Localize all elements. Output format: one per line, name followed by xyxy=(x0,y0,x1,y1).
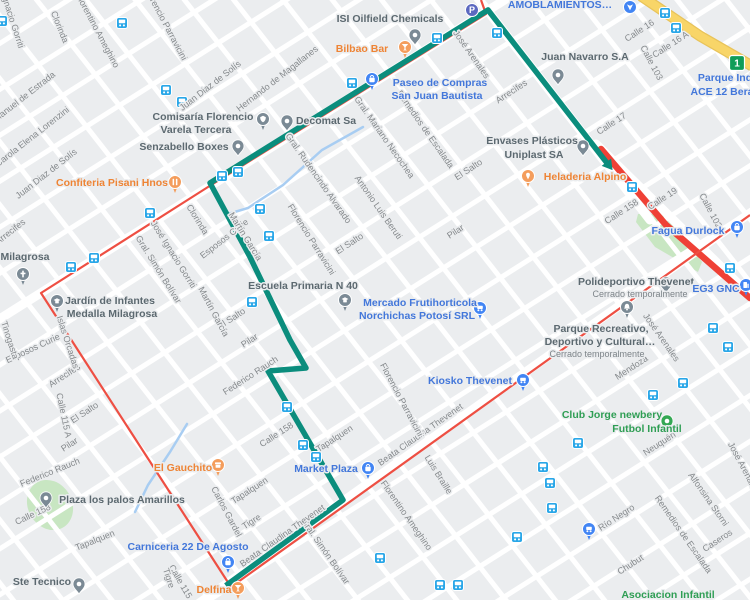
poi-label-ste-tecnico[interactable]: Ste Tecnico xyxy=(13,576,71,588)
poi-label-parque-industrial[interactable]: Parque Ind xyxy=(698,72,750,84)
bus-wheel xyxy=(147,214,149,216)
glyph-hose xyxy=(747,284,748,288)
bus-window xyxy=(540,464,546,468)
bus-wheel xyxy=(239,173,241,175)
bus-window xyxy=(313,454,319,458)
glyph-bag-body xyxy=(369,78,374,83)
bus-wheel xyxy=(167,91,169,93)
bus-window xyxy=(147,210,153,214)
pin-circle xyxy=(169,176,182,189)
bus-window xyxy=(249,299,255,303)
bus-wheel xyxy=(544,468,546,470)
bus-window xyxy=(710,325,716,329)
bus-wheel xyxy=(438,39,440,41)
glyph-awning xyxy=(215,462,221,464)
bus-wheel xyxy=(731,269,733,271)
bus-window xyxy=(284,404,290,408)
poi-label-confiteria-pisani[interactable]: Confiteria Pisani Hnos xyxy=(56,177,168,189)
poi-label-jardin-medalla[interactable]: Medalla Milagrosa xyxy=(67,308,158,320)
bus-window xyxy=(257,206,263,210)
glyph-cart-wheel xyxy=(481,309,483,311)
bus-wheel xyxy=(304,446,306,448)
bus-wheel xyxy=(3,22,5,24)
bus-window xyxy=(91,255,97,259)
bus-window xyxy=(219,173,225,177)
pin-hole xyxy=(285,119,290,124)
poi-label-jardin-medalla[interactable]: Jardín de Infantes xyxy=(65,295,155,307)
poi-pin-amoblamientos[interactable] xyxy=(624,1,637,14)
poi-label-carniceria-22[interactable]: Carniceria 22 De Agosto xyxy=(128,541,249,553)
bus-stop-icon[interactable] xyxy=(298,440,309,451)
glyph-storefront xyxy=(216,465,221,468)
bus-stop-icon[interactable] xyxy=(217,171,228,182)
bus-wheel xyxy=(710,329,712,331)
glyph-cart-wheel xyxy=(590,530,592,532)
bus-window xyxy=(437,582,443,586)
bus-stop-icon[interactable] xyxy=(264,231,275,242)
bus-stop-icon[interactable] xyxy=(547,503,558,514)
poi-label-decomat[interactable]: Decomat Sa xyxy=(296,115,356,127)
bus-stop-icon[interactable] xyxy=(282,402,293,413)
poi-label-parque-industrial[interactable]: ACE 12 Bera xyxy=(690,86,750,98)
bus-stop-icon[interactable] xyxy=(538,462,549,473)
bus-wheel xyxy=(313,458,315,460)
poi-label-paseo-de-compras[interactable]: San Juan Bautista xyxy=(391,90,482,102)
poi-pin-parking-point[interactable]: P xyxy=(466,4,479,17)
bus-stop-icon[interactable] xyxy=(545,478,556,489)
bus-wheel xyxy=(151,214,153,216)
bus-wheel xyxy=(284,408,286,410)
bus-wheel xyxy=(673,29,675,31)
bus-window xyxy=(547,480,553,484)
bus-wheel xyxy=(270,237,272,239)
bus-stop-icon[interactable] xyxy=(161,85,172,96)
bus-window xyxy=(680,380,686,384)
bus-wheel xyxy=(223,177,225,179)
bus-wheel xyxy=(288,408,290,410)
poi-label-delfina[interactable]: Delfina xyxy=(196,584,231,596)
bus-wheel xyxy=(514,538,516,540)
bus-wheel xyxy=(684,384,686,386)
bus-wheel xyxy=(549,509,551,511)
poi-label-iglesia-milagrosa[interactable]: Milagrosa xyxy=(0,251,49,263)
bus-wheel xyxy=(381,559,383,561)
bus-window xyxy=(629,184,635,188)
bus-stop-icon[interactable] xyxy=(66,262,77,273)
bus-stop-icon[interactable] xyxy=(432,33,443,44)
bus-window xyxy=(514,534,520,538)
glyph-cart-wheel xyxy=(477,309,479,311)
bus-wheel xyxy=(349,84,351,86)
bus-stop-icon[interactable] xyxy=(512,532,523,543)
route-shield: 1 xyxy=(730,56,745,71)
bus-wheel xyxy=(437,586,439,588)
bus-wheel xyxy=(680,384,682,386)
glyph-bag-body xyxy=(734,226,739,231)
glyph-cap-base xyxy=(55,301,59,303)
poi-label-mercado-frutihorticola[interactable]: Norchichas Potosí SRL xyxy=(359,310,476,322)
pin-hole xyxy=(236,144,241,149)
bus-stop-icon[interactable] xyxy=(453,580,464,591)
glyph-bag-body xyxy=(225,561,230,566)
bus-stop-icon[interactable] xyxy=(678,378,689,389)
bus-stop-icon[interactable] xyxy=(247,297,258,308)
pin-hole xyxy=(44,496,49,501)
bus-stop-icon[interactable] xyxy=(725,263,736,274)
poi-label-plaza-palos-amarillos[interactable]: Plaza los palos Amarillos xyxy=(59,494,185,506)
bus-stop-icon[interactable] xyxy=(233,167,244,178)
bus-wheel xyxy=(654,396,656,398)
poi-label-comisaria[interactable]: Comisaría Florencio xyxy=(153,111,254,123)
bus-wheel xyxy=(257,210,259,212)
bus-stop-icon[interactable] xyxy=(648,390,659,401)
glyph-cart-body xyxy=(586,527,592,530)
glyph-letter-p: P xyxy=(469,5,475,15)
bus-window xyxy=(549,505,555,509)
bus-wheel xyxy=(727,269,729,271)
map-viewport[interactable]: 1Ignacio GorritiClorindaFlorentino Amegh… xyxy=(0,0,750,600)
bus-stop-icon[interactable] xyxy=(627,182,638,193)
bus-window xyxy=(266,233,272,237)
bus-window xyxy=(673,25,679,29)
glyph-cart-wheel xyxy=(520,381,522,383)
poi-label-heladeria-alpino[interactable]: Heladeria Alpino xyxy=(544,171,626,183)
poi-label-asociacion-infantil[interactable]: Asociacion Infantil xyxy=(621,589,714,600)
bus-wheel xyxy=(253,303,255,305)
route-shield-label: 1 xyxy=(734,59,740,70)
bus-wheel xyxy=(266,237,268,239)
bus-wheel xyxy=(219,177,221,179)
bus-window xyxy=(0,18,5,22)
glyph-cart-body xyxy=(520,378,526,381)
glyph-fork xyxy=(173,179,175,185)
map-canvas[interactable]: 1Ignacio GorritiClorindaFlorentino Amegh… xyxy=(0,0,750,600)
poi-label-parque-recreativo[interactable]: Parque Recreativo, xyxy=(553,323,648,335)
glyph-cap-base xyxy=(343,300,347,302)
bus-stop-icon[interactable] xyxy=(145,208,156,219)
poi-label-market-plaza[interactable]: Market Plaza xyxy=(294,463,358,475)
bus-window xyxy=(349,80,355,84)
bus-wheel xyxy=(579,444,581,446)
glyph-cross-h xyxy=(21,273,26,275)
bus-window xyxy=(235,169,241,173)
pin-hole xyxy=(556,73,561,78)
bus-window xyxy=(300,442,306,446)
poi-sublabel-polideportivo-thevenet: Cerrado temporalmente xyxy=(592,289,687,299)
bus-wheel xyxy=(540,468,542,470)
bus-wheel xyxy=(494,34,496,36)
bus-stop-icon[interactable] xyxy=(89,253,100,264)
poi-label-envases-plasticos[interactable]: Envases Plásticos xyxy=(486,135,578,147)
poi-label-paseo-de-compras[interactable]: Paseo de Compras xyxy=(393,77,488,89)
poi-label-comisaria[interactable]: Varela Tercera xyxy=(160,124,231,136)
poi-label-senzabello[interactable]: Senzabello Boxes xyxy=(139,141,228,153)
bus-window xyxy=(725,344,731,348)
bus-wheel xyxy=(459,586,461,588)
bus-wheel xyxy=(300,446,302,448)
poi-label-juan-navarro[interactable]: Juan Navarro S.A xyxy=(541,51,629,63)
bus-stop-icon[interactable] xyxy=(117,18,128,29)
poi-label-kiosko-thevenet[interactable]: Kiosko Thevenet xyxy=(428,375,513,387)
bus-window xyxy=(68,264,74,268)
bus-wheel xyxy=(68,268,70,270)
glyph-bell-clapper xyxy=(626,309,628,311)
bus-wheel xyxy=(235,173,237,175)
poi-label-fagua-durlock[interactable]: Fagua Durlock xyxy=(652,225,725,237)
glyph-bag-body xyxy=(365,467,370,472)
bus-stop-icon[interactable] xyxy=(375,553,386,564)
bus-stop-icon[interactable] xyxy=(723,342,734,353)
bus-wheel xyxy=(377,559,379,561)
poi-label-club-jorge-newbery[interactable]: Club Jorge newbery xyxy=(562,409,663,421)
bus-stop-icon[interactable] xyxy=(708,323,719,334)
bus-wheel xyxy=(91,259,93,261)
poi-label-escuela-primaria[interactable]: Escuela Primaria N 40 xyxy=(248,280,358,292)
bus-window xyxy=(662,10,668,14)
bus-wheel xyxy=(434,39,436,41)
bus-wheel xyxy=(666,14,668,16)
poi-label-envases-plasticos[interactable]: Uniplast SA xyxy=(505,149,564,161)
bus-window xyxy=(377,555,383,559)
bus-stop-icon[interactable] xyxy=(435,580,446,591)
bus-wheel xyxy=(261,210,263,212)
bus-wheel xyxy=(317,458,319,460)
bus-stop-icon[interactable] xyxy=(492,28,503,39)
poi-label-isi-oilfield[interactable]: ISI Oilfield Chemicals xyxy=(337,13,444,25)
poi-label-el-gauchito[interactable]: El Gauchito xyxy=(154,462,212,474)
bus-stop-icon[interactable] xyxy=(255,204,266,215)
bus-wheel xyxy=(650,396,652,398)
bus-wheel xyxy=(119,24,121,26)
poi-label-polideportivo-thevenet[interactable]: Polideportivo Thevenet xyxy=(578,276,695,288)
bus-window xyxy=(494,30,500,34)
bus-wheel xyxy=(353,84,355,86)
bus-window xyxy=(119,20,125,24)
bus-wheel xyxy=(455,586,457,588)
bus-wheel xyxy=(551,484,553,486)
pin-hole xyxy=(581,144,586,149)
bus-wheel xyxy=(518,538,520,540)
bus-window xyxy=(163,87,169,91)
bus-wheel xyxy=(575,444,577,446)
pin-hole xyxy=(413,33,418,38)
bus-window xyxy=(434,35,440,39)
bus-wheel xyxy=(633,188,635,190)
poi-label-bilbao-bar[interactable]: Bilbao Bar xyxy=(336,43,389,55)
poi-sublabel-parque-recreativo: Cerrado temporalmente xyxy=(549,349,644,359)
poi-label-amoblamientos[interactable]: AMOBLAMIENTOS… xyxy=(508,0,612,11)
bus-wheel xyxy=(553,509,555,511)
glyph-cart-wheel xyxy=(586,530,588,532)
bus-wheel xyxy=(249,303,251,305)
bus-wheel xyxy=(677,29,679,31)
bus-wheel xyxy=(729,348,731,350)
bus-wheel xyxy=(72,268,74,270)
glyph-cart-wheel xyxy=(524,381,526,383)
bus-wheel xyxy=(547,484,549,486)
bus-window xyxy=(727,265,733,269)
poi-label-mercado-frutihorticola[interactable]: Mercado Frutihorticola xyxy=(363,297,477,309)
pin-hole xyxy=(77,582,82,587)
glyph-pump xyxy=(743,282,747,288)
poi-label-club-jorge-newbery[interactable]: Futbol Infantil xyxy=(612,423,681,435)
bus-window xyxy=(575,440,581,444)
bus-wheel xyxy=(662,14,664,16)
glyph-knife xyxy=(176,179,178,185)
bus-wheel xyxy=(629,188,631,190)
bus-wheel xyxy=(95,259,97,261)
bus-window xyxy=(455,582,461,586)
glyph-cart-body xyxy=(477,306,483,309)
bus-wheel xyxy=(123,24,125,26)
bus-stop-icon[interactable] xyxy=(573,438,584,449)
poi-label-parque-recreativo[interactable]: Deportivo y Cultural… xyxy=(545,336,656,348)
bus-wheel xyxy=(714,329,716,331)
bus-wheel xyxy=(163,91,165,93)
bus-stop-icon[interactable] xyxy=(660,8,671,19)
bus-wheel xyxy=(441,586,443,588)
bus-stop-icon[interactable] xyxy=(347,78,358,89)
bus-wheel xyxy=(725,348,727,350)
poi-label-eg3-gnc[interactable]: EG3 GNC xyxy=(692,283,740,295)
bus-window xyxy=(650,392,656,396)
bus-wheel xyxy=(498,34,500,36)
